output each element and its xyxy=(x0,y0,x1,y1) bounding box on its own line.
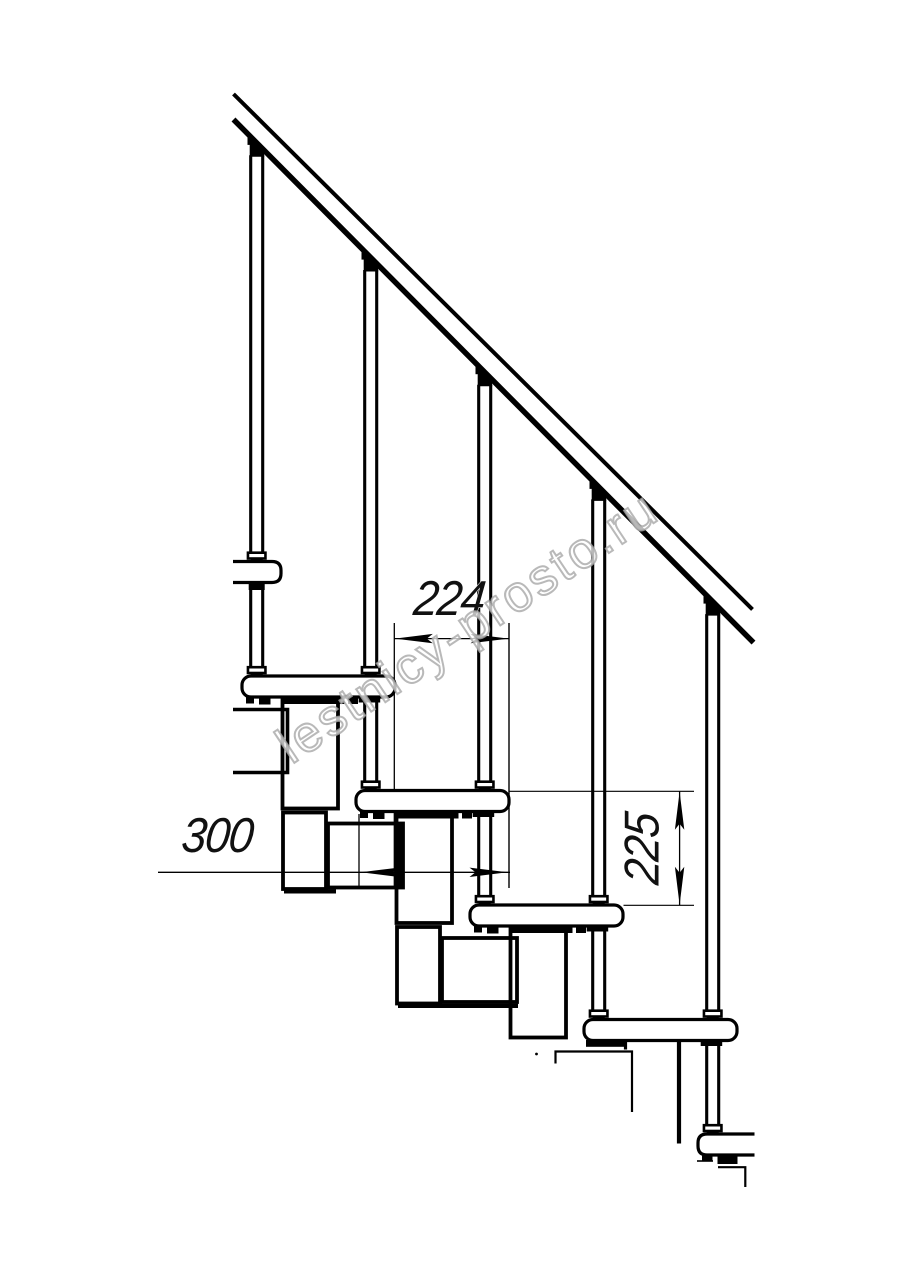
svg-text:225: 225 xyxy=(614,808,669,887)
svg-text:300: 300 xyxy=(179,807,256,862)
